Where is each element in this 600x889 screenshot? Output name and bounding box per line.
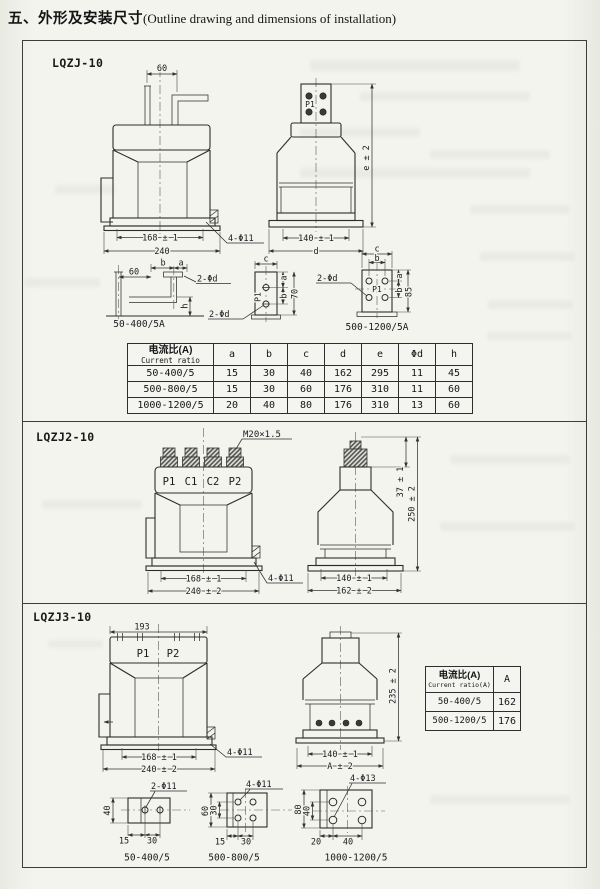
lqzj10-dimension-table: 电流比(A) Current ratio a b c d e Φd h 50-4…	[127, 343, 473, 414]
dim-c: c	[263, 255, 268, 265]
dim-250: 250 ± 2	[408, 486, 418, 522]
value-cell: 13	[399, 398, 436, 414]
dim-b: b	[280, 293, 290, 298]
value-cell: 11	[399, 382, 436, 398]
dim-20: 20	[311, 838, 321, 848]
dim-193: 193	[134, 623, 149, 633]
table-row: 500-1200/5 176	[426, 712, 521, 731]
ratio-cell: 1000-1200/5	[128, 398, 214, 414]
current-ratio-header-zh: 电流比(A)	[128, 345, 213, 356]
dim-15: 15	[119, 837, 129, 847]
col-header-d: d	[325, 344, 362, 366]
value-cell: 310	[362, 382, 399, 398]
dim-h: h	[181, 303, 191, 308]
holes-2-phi-d-label: 2-Φd	[197, 275, 217, 285]
thread-spec-label: M20×1.5	[243, 430, 281, 440]
col-header-a: a	[214, 344, 251, 366]
table-row: 1000-1200/5 20 40 80 176 310 13 60	[128, 398, 473, 414]
table-row: 50-400/5 162	[426, 693, 521, 712]
col-header-a: A	[494, 667, 521, 693]
dim-168: 168 ± 1	[142, 234, 178, 244]
dim-a: a	[280, 275, 290, 280]
terminal-p1-label: P1	[137, 648, 150, 660]
mounting-holes-label: 4-Φ11	[268, 574, 294, 584]
current-ratio-header-en: Current ratio(A)	[426, 681, 493, 689]
table-header-row: 电流比(A) Current ratio(A) A	[426, 667, 521, 693]
dim-140: 140 ± 1	[322, 750, 358, 760]
detail-caption: 50-400/5A	[113, 319, 165, 330]
dim-b: b	[160, 259, 165, 269]
col-header-c: c	[288, 344, 325, 366]
holes-2-phi-11-label: 2-Φ11	[151, 782, 177, 792]
dim-40: 40	[343, 838, 353, 848]
dim-60-detail: 60	[129, 268, 139, 278]
dim-168: 168 ± 1	[141, 753, 177, 763]
table-row: 50-400/5 15 30 40 162 295 11 45	[128, 366, 473, 382]
table-header-row: 电流比(A) Current ratio a b c d e Φd h	[128, 344, 473, 366]
dim-15: 15	[215, 838, 225, 848]
page-title-english: (Outline drawing and dimensions of insta…	[143, 11, 396, 26]
holes-4-phi-13-label: 4-Φ13	[350, 774, 376, 784]
holes-2-phi-d-label: 2-Φd	[209, 310, 229, 320]
dim-30: 30	[241, 838, 251, 848]
current-ratio-header-zh: 电流比(A)	[426, 671, 493, 681]
dim-40-vertical: 40	[303, 806, 313, 816]
value-cell: 176	[494, 712, 521, 731]
s1-front-view: 60 168 ± 1 240 4-Φ11	[101, 64, 264, 257]
holes-4-phi-11-label: 4-Φ11	[246, 780, 272, 790]
s3-detail-1000-1200: 4-Φ13 80 40 20 40 1000-1200/5	[294, 774, 387, 864]
dim-240: 240 ± 2	[141, 765, 177, 775]
ratio-cell: 50-400/5	[128, 366, 214, 382]
value-cell: 295	[362, 366, 399, 382]
terminal-c2-label: C2	[207, 476, 220, 488]
mounting-holes-label: 4-Φ11	[227, 748, 253, 758]
col-header-e: e	[362, 344, 399, 366]
page-title: 五、外形及安装尺寸(Outline drawing and dimensions…	[8, 7, 396, 28]
value-cell: 15	[214, 366, 251, 382]
terminal-p1-label: P1	[163, 476, 176, 488]
document-page: 五、外形及安装尺寸(Outline drawing and dimensions…	[0, 0, 600, 889]
terminal-p2-label: P2	[167, 648, 180, 660]
dim-b: b	[395, 287, 405, 292]
ratio-cell: 500-1200/5	[426, 712, 494, 731]
s3-side-view: 235 ± 2 140 ± 1 A ± 2	[296, 626, 402, 772]
value-cell: 176	[325, 398, 362, 414]
value-cell: 310	[362, 398, 399, 414]
value-cell: 20	[214, 398, 251, 414]
dim-a: a	[178, 259, 183, 269]
lqzj3-10-drawing: 193 P1 P2 4-Φ11 168 ± 1 240 ± 2	[22, 603, 587, 868]
table-row: 500-800/5 15 30 60 176 310 11 60	[128, 382, 473, 398]
current-ratio-header-cell: 电流比(A) Current ratio	[128, 344, 214, 366]
value-cell: 60	[436, 382, 473, 398]
terminal-p2-label: P2	[229, 476, 242, 488]
ratio-cell: 500-800/5	[128, 382, 214, 398]
value-cell: 60	[288, 382, 325, 398]
current-ratio-header-cell: 电流比(A) Current ratio(A)	[426, 667, 494, 693]
value-cell: 15	[214, 382, 251, 398]
s3-detail-50-400: 2-Φ11 40 15 30 50-400/5	[103, 782, 190, 864]
terminal-p1-label: P1	[372, 285, 382, 294]
dim-b-top: b	[374, 254, 379, 264]
s3-detail-500-800: 4-Φ11 60 30 15 30 500-800/5	[201, 780, 292, 864]
s2-side-view: 37 ± 1 250 ± 2 140 ± 1 162 ± 2	[308, 432, 421, 597]
value-cell: 162	[325, 366, 362, 382]
dim-30-vertical: 30	[210, 805, 220, 815]
col-header-h: h	[436, 344, 473, 366]
dim-168: 168 ± 1	[186, 575, 222, 585]
dim-140: 140 ± 1	[298, 234, 334, 244]
value-cell: 176	[325, 382, 362, 398]
page-title-chinese: 五、外形及安装尺寸	[8, 11, 143, 27]
dim-c: c	[374, 245, 379, 255]
value-cell: 11	[399, 366, 436, 382]
detail-caption: 500-1200/5A	[346, 322, 409, 333]
current-ratio-header-en: Current ratio	[128, 356, 213, 365]
dim-70: 70	[291, 289, 301, 299]
dim-240: 240 ± 2	[186, 587, 222, 597]
value-cell: 162	[494, 693, 521, 712]
s1-detail-50-400: 60 b a h 2-Φd 2-Φd 50-400/5A	[106, 259, 264, 331]
dim-60: 60	[157, 64, 167, 74]
dim-d: d	[313, 247, 318, 257]
dim-a: a	[395, 273, 405, 278]
s1-detail-plate: P1 c a b 70	[252, 255, 301, 323]
ratio-cell: 50-400/5	[426, 693, 494, 712]
value-cell: 30	[251, 382, 288, 398]
terminal-p1-label: P1	[305, 100, 315, 109]
dim-40: 40	[103, 805, 113, 815]
dim-e: e ± 2	[362, 145, 372, 171]
holes-2-phi-d-label: 2-Φd	[317, 274, 337, 284]
terminal-c1-label: C1	[185, 476, 198, 488]
value-cell: 40	[288, 366, 325, 382]
value-cell: 40	[251, 398, 288, 414]
lqzj3-10-a-dimension-table: 电流比(A) Current ratio(A) A 50-400/5 162 5…	[425, 666, 521, 731]
s3-front-view: 193 P1 P2 4-Φ11 168 ± 1 240 ± 2	[99, 623, 262, 776]
dim-37: 37 ± 1	[396, 467, 406, 498]
dim-235: 235 ± 2	[389, 668, 399, 704]
value-cell: 45	[436, 366, 473, 382]
mounting-holes-label: 4-Φ11	[228, 234, 254, 244]
dim-140: 140 ± 1	[336, 574, 372, 584]
s1-side-view: P1 140 ± 1 d e ± 2	[269, 78, 376, 257]
s1-detail-500-1200: P1 c b a b 85 2-Φd 500-1200/5A	[316, 245, 415, 334]
detail-caption: 500-800/5	[208, 853, 259, 864]
dim-240: 240	[154, 247, 169, 257]
detail-caption: 1000-1200/5	[325, 853, 388, 864]
lqzj2-10-drawing: P1 C1 C2 P2 M20×1.5 4-Φ11 168 ± 1 240 ± …	[22, 421, 587, 603]
value-cell: 80	[288, 398, 325, 414]
col-header-b: b	[251, 344, 288, 366]
dim-a2: A ± 2	[327, 762, 353, 772]
dim-30: 30	[147, 837, 157, 847]
value-cell: 30	[251, 366, 288, 382]
detail-caption: 50-400/5	[124, 853, 170, 864]
s2-front-view: P1 C1 C2 P2 M20×1.5 4-Φ11 168 ± 1 240 ± …	[146, 428, 303, 597]
value-cell: 60	[436, 398, 473, 414]
terminal-p1-label: P1	[254, 292, 263, 302]
dim-85: 85	[405, 287, 415, 297]
dim-162: 162 ± 2	[336, 587, 372, 597]
col-header-phi-d: Φd	[399, 344, 436, 366]
